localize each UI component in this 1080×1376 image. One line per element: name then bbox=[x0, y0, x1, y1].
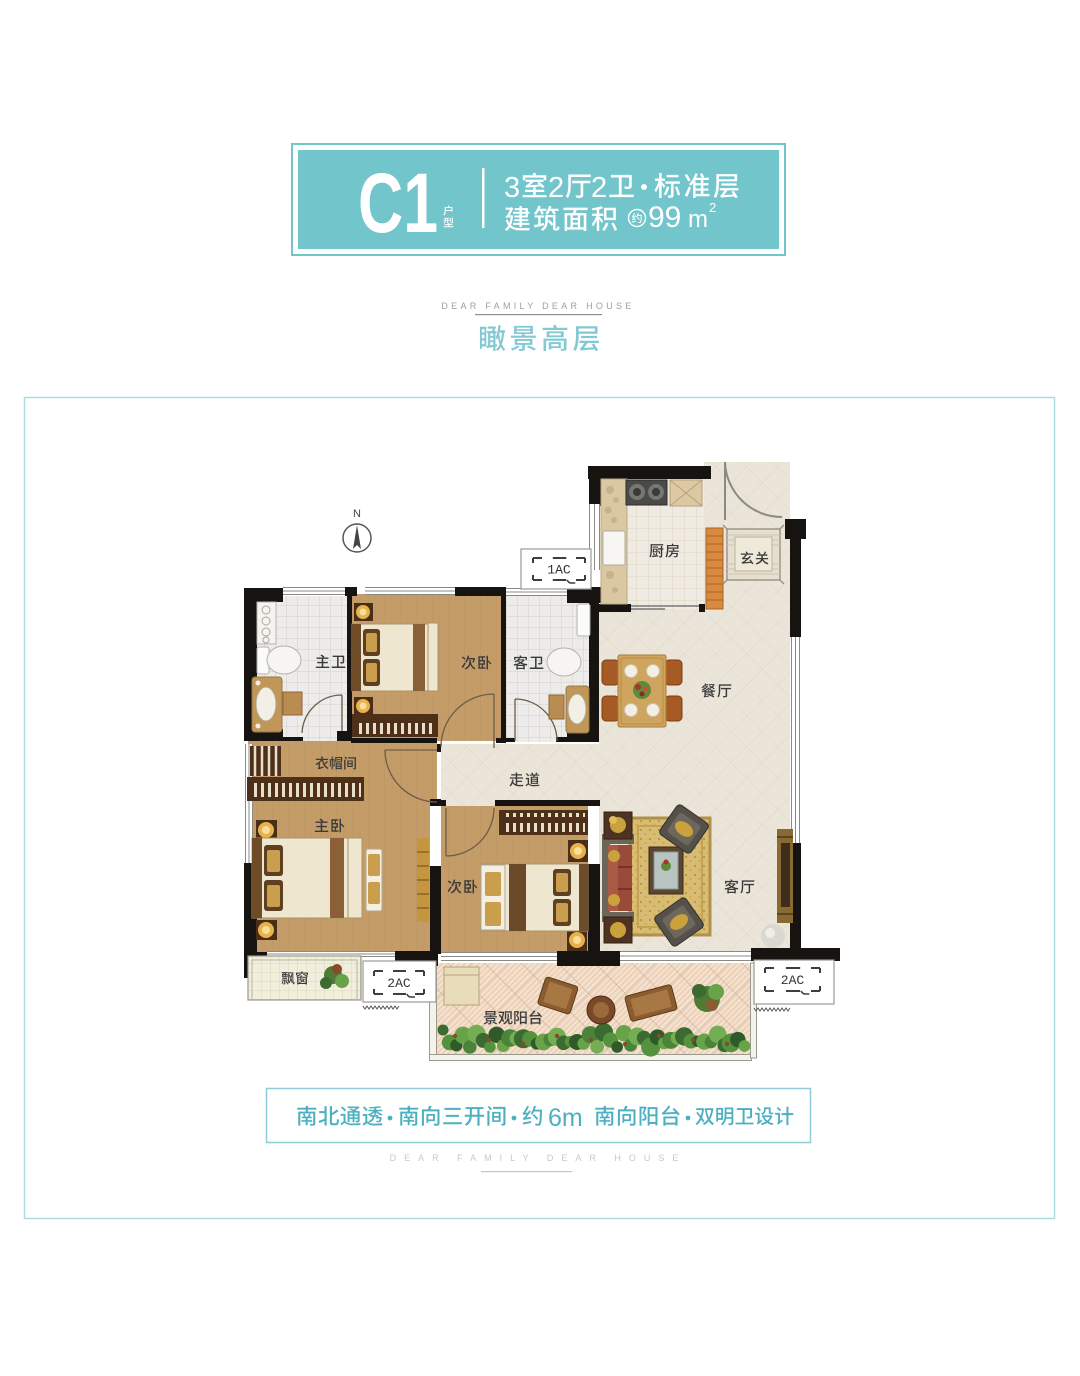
svg-text:DEAR FAMILY DEAR HOUSE: DEAR FAMILY DEAR HOUSE bbox=[390, 1153, 687, 1163]
svg-text:2AC: 2AC bbox=[387, 976, 411, 991]
svg-text:m: m bbox=[688, 206, 708, 233]
svg-text:2AC: 2AC bbox=[781, 973, 805, 988]
svg-text:6m: 6m bbox=[548, 1104, 583, 1132]
svg-text:2: 2 bbox=[548, 172, 564, 204]
svg-text:DEAR FAMILY DEAR HOUSE: DEAR FAMILY DEAR HOUSE bbox=[441, 301, 634, 311]
svg-text:99: 99 bbox=[648, 201, 681, 234]
svg-text:2: 2 bbox=[591, 172, 607, 204]
svg-text:3: 3 bbox=[504, 172, 520, 204]
svg-text:C1: C1 bbox=[358, 156, 438, 250]
svg-text:2: 2 bbox=[709, 200, 716, 215]
svg-text:1AC: 1AC bbox=[547, 563, 571, 578]
svg-text:N: N bbox=[353, 508, 361, 520]
